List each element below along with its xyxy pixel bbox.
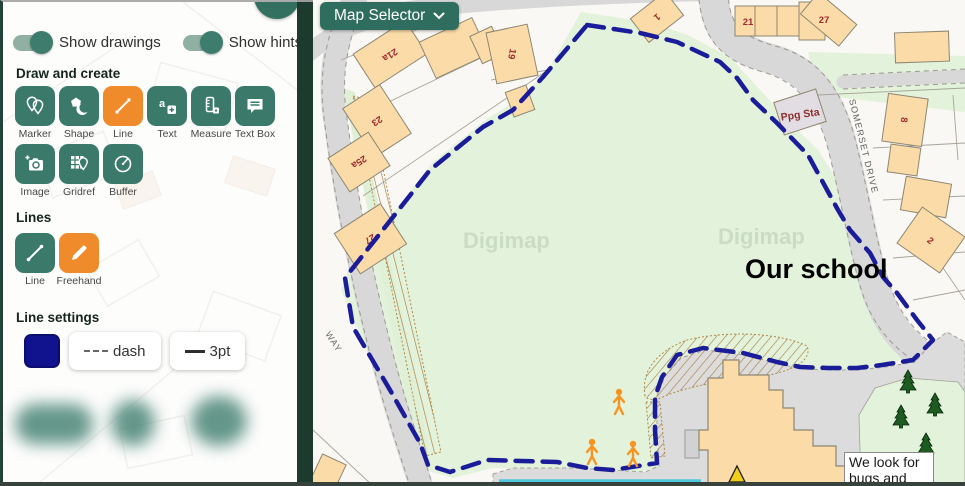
tool-measure[interactable]: Measure bbox=[189, 86, 233, 140]
dash-style-icon bbox=[84, 350, 108, 352]
building-number: 21 bbox=[743, 17, 754, 28]
map-selector-label: Map Selector bbox=[334, 7, 425, 25]
lines-heading: Lines bbox=[16, 210, 51, 225]
line-icon bbox=[111, 94, 135, 118]
outbuilding bbox=[685, 430, 699, 458]
building-number: 8 bbox=[898, 117, 909, 123]
blurred-button bbox=[191, 396, 247, 446]
digimap-watermark: Digimap bbox=[718, 224, 805, 249]
draw-create-heading: Draw and create bbox=[16, 66, 120, 81]
show-hints-label: Show hints bbox=[229, 34, 297, 51]
toggle-track bbox=[13, 35, 50, 51]
marker-icon bbox=[23, 94, 47, 118]
building bbox=[887, 144, 921, 176]
building bbox=[894, 31, 949, 63]
tool-text-box[interactable]: Text Box bbox=[233, 86, 277, 140]
show-drawings-toggle[interactable]: Show drawings bbox=[13, 34, 183, 51]
tool-freehand[interactable]: Freehand bbox=[57, 233, 101, 287]
tool-buffer[interactable]: Buffer bbox=[101, 144, 145, 198]
digimap-app: Show drawings Show hints Draw and create… bbox=[0, 0, 965, 486]
line-style-label: dash bbox=[113, 343, 146, 360]
svg-text:a: a bbox=[159, 98, 166, 110]
line-width-label: 3pt bbox=[210, 343, 231, 360]
road-lane-east bbox=[843, 76, 965, 82]
tool-text[interactable]: a Text bbox=[145, 86, 189, 140]
toggle-track bbox=[183, 35, 220, 51]
image-icon bbox=[23, 152, 47, 176]
line-width-button[interactable]: 3pt bbox=[170, 332, 246, 370]
map-selector-button[interactable]: Map Selector bbox=[320, 2, 459, 30]
building-number: 27 bbox=[819, 15, 830, 26]
toggle-knob bbox=[200, 31, 223, 54]
text-box-icon bbox=[243, 94, 267, 118]
bottom-edge-bar bbox=[0, 482, 965, 486]
buffer-icon bbox=[111, 152, 135, 176]
line-width-icon bbox=[185, 350, 205, 353]
measure-icon bbox=[199, 94, 223, 118]
blurred-panel-region bbox=[11, 380, 293, 478]
freehand-icon bbox=[67, 241, 91, 265]
drawing-sidebar: Show drawings Show hints Draw and create… bbox=[0, 0, 297, 486]
tool-gridref[interactable]: Gridref bbox=[57, 144, 101, 198]
blurred-button bbox=[15, 404, 93, 444]
chevron-down-icon bbox=[433, 12, 445, 20]
textbox-line1: We look for bbox=[849, 455, 929, 471]
toggles-row: Show drawings Show hints bbox=[13, 34, 297, 51]
tool-image[interactable]: Image bbox=[13, 144, 57, 198]
toggle-knob bbox=[30, 31, 53, 54]
line-segment-icon bbox=[23, 241, 47, 265]
show-drawings-label: Show drawings bbox=[59, 34, 161, 51]
school-label-annotation[interactable]: Our school bbox=[745, 254, 888, 284]
sidebar-divider[interactable] bbox=[297, 0, 313, 486]
map-textbox-annotation[interactable]: We look for bugs and bbox=[844, 452, 934, 486]
digimap-watermark: Digimap bbox=[463, 228, 550, 253]
tool-line[interactable]: Line bbox=[101, 86, 145, 140]
map-svg: Ppg Sta 21a 23 25a 27 19 1 21 27 8 2 SOM… bbox=[313, 0, 965, 486]
map-canvas[interactable]: Ppg Sta 21a 23 25a 27 19 1 21 27 8 2 SOM… bbox=[313, 0, 965, 486]
shape-icon bbox=[67, 94, 91, 118]
draw-tools-grid: Marker Shape Line a bbox=[13, 86, 293, 202]
line-tools-grid: Line Freehand bbox=[13, 233, 293, 291]
line-settings-row: dash 3pt bbox=[24, 332, 245, 370]
tool-marker[interactable]: Marker bbox=[13, 86, 57, 140]
text-icon: a bbox=[155, 94, 179, 118]
show-hints-toggle[interactable]: Show hints bbox=[183, 34, 297, 51]
building-number: 19 bbox=[505, 48, 518, 60]
panel-collapse-button[interactable] bbox=[254, 0, 297, 19]
tool-shape[interactable]: Shape bbox=[57, 86, 101, 140]
blurred-button bbox=[111, 400, 155, 446]
tool-line-segment[interactable]: Line bbox=[13, 233, 57, 287]
line-color-swatch[interactable] bbox=[24, 334, 60, 368]
line-settings-heading: Line settings bbox=[16, 310, 99, 325]
line-style-button[interactable]: dash bbox=[69, 332, 161, 370]
gridref-icon bbox=[67, 152, 91, 176]
